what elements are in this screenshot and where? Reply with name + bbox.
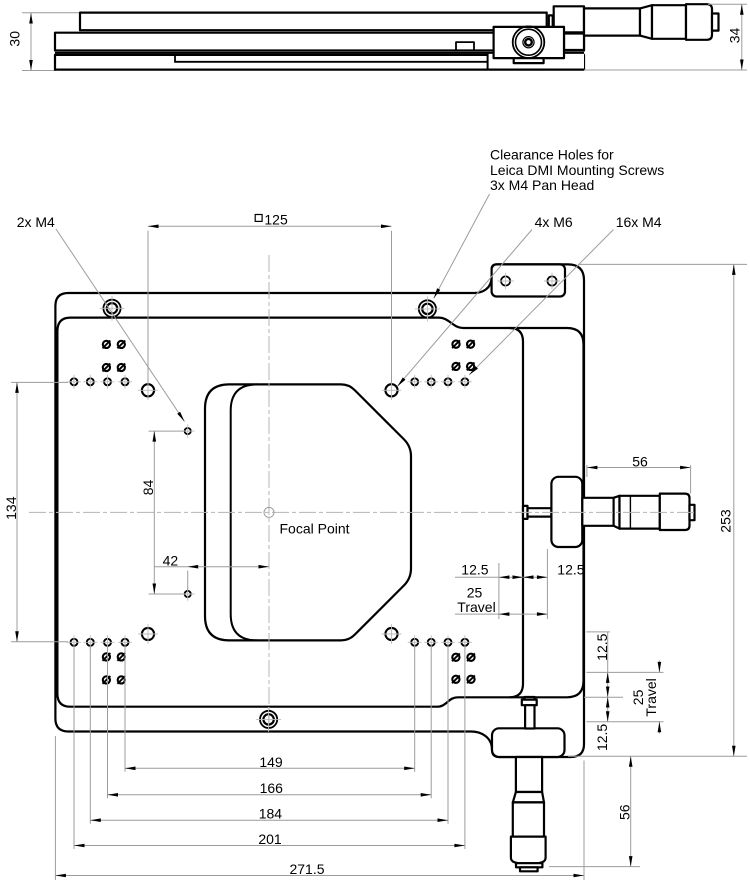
svg-text:166: 166 bbox=[260, 780, 284, 796]
svg-text:56: 56 bbox=[632, 453, 648, 469]
svg-text:12.5: 12.5 bbox=[594, 633, 610, 660]
svg-text:134: 134 bbox=[3, 496, 19, 520]
svg-text:184: 184 bbox=[259, 806, 283, 822]
svg-text:253: 253 bbox=[718, 509, 734, 533]
svg-text:125: 125 bbox=[264, 211, 288, 227]
svg-text:Travel: Travel bbox=[457, 599, 495, 615]
svg-text:4x M6: 4x M6 bbox=[535, 214, 573, 230]
svg-text:271.5: 271.5 bbox=[289, 861, 324, 877]
svg-text:12.5: 12.5 bbox=[557, 562, 584, 578]
svg-text:Travel: Travel bbox=[643, 678, 659, 716]
svg-text:12.5: 12.5 bbox=[461, 562, 488, 578]
svg-text:12.5: 12.5 bbox=[594, 724, 610, 751]
svg-text:56: 56 bbox=[617, 804, 633, 820]
svg-text:16x M4: 16x M4 bbox=[616, 214, 662, 230]
svg-text:2x M4: 2x M4 bbox=[17, 214, 55, 230]
svg-text:84: 84 bbox=[140, 480, 156, 496]
svg-text:Clearance Holes for: Clearance Holes for bbox=[490, 147, 614, 163]
svg-text:Leica DMI Mounting Screws: Leica DMI Mounting Screws bbox=[490, 162, 664, 178]
svg-text:3x M4 Pan Head: 3x M4 Pan Head bbox=[490, 177, 594, 193]
svg-text:Focal Point: Focal Point bbox=[280, 521, 350, 537]
svg-text:34: 34 bbox=[726, 28, 742, 44]
svg-text:30: 30 bbox=[7, 31, 23, 47]
svg-text:201: 201 bbox=[258, 831, 282, 847]
svg-text:42: 42 bbox=[163, 552, 179, 568]
svg-text:149: 149 bbox=[259, 754, 283, 770]
